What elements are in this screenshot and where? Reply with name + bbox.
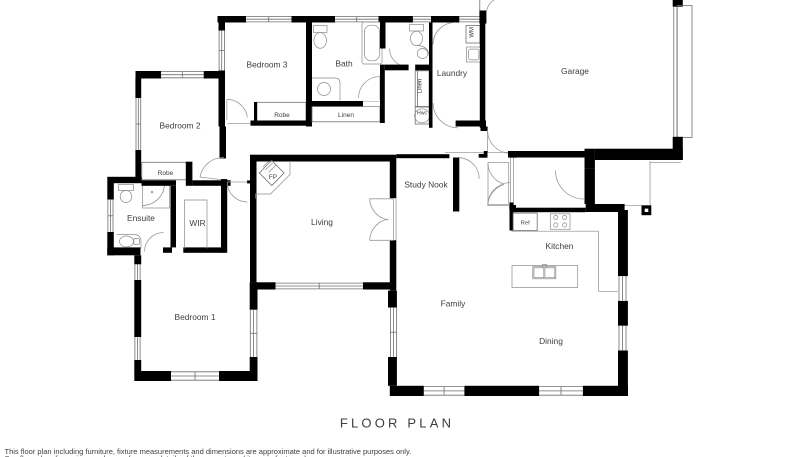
svg-text:Family: Family <box>441 299 466 309</box>
svg-text:Dining: Dining <box>539 336 563 346</box>
svg-text:Living: Living <box>311 217 333 227</box>
svg-text:Robe: Robe <box>274 112 290 119</box>
svg-text:Study Nook: Study Nook <box>404 180 448 190</box>
svg-text:Kitchen: Kitchen <box>546 241 574 251</box>
svg-text:Bedroom 2: Bedroom 2 <box>160 121 201 131</box>
svg-text:Ref: Ref <box>521 220 530 226</box>
svg-text:Garage: Garage <box>561 66 589 76</box>
svg-text:Ensuite: Ensuite <box>127 213 155 223</box>
svg-text:Bedroom 3: Bedroom 3 <box>247 60 288 70</box>
svg-text:WM: WM <box>470 27 476 38</box>
svg-text:Laundry: Laundry <box>437 68 468 78</box>
svg-text:Linen: Linen <box>338 112 354 119</box>
svg-text:Hwc: Hwc <box>417 111 427 117</box>
svg-text:WIR: WIR <box>189 218 205 228</box>
svg-text:Robe: Robe <box>158 170 174 177</box>
svg-text:FLOOR PLAN: FLOOR PLAN <box>340 415 454 430</box>
svg-text:Bedroom 1: Bedroom 1 <box>175 312 216 322</box>
svg-text:Linen: Linen <box>418 79 424 94</box>
svg-text:Bath: Bath <box>335 59 353 69</box>
svg-text:FP: FP <box>269 174 277 181</box>
